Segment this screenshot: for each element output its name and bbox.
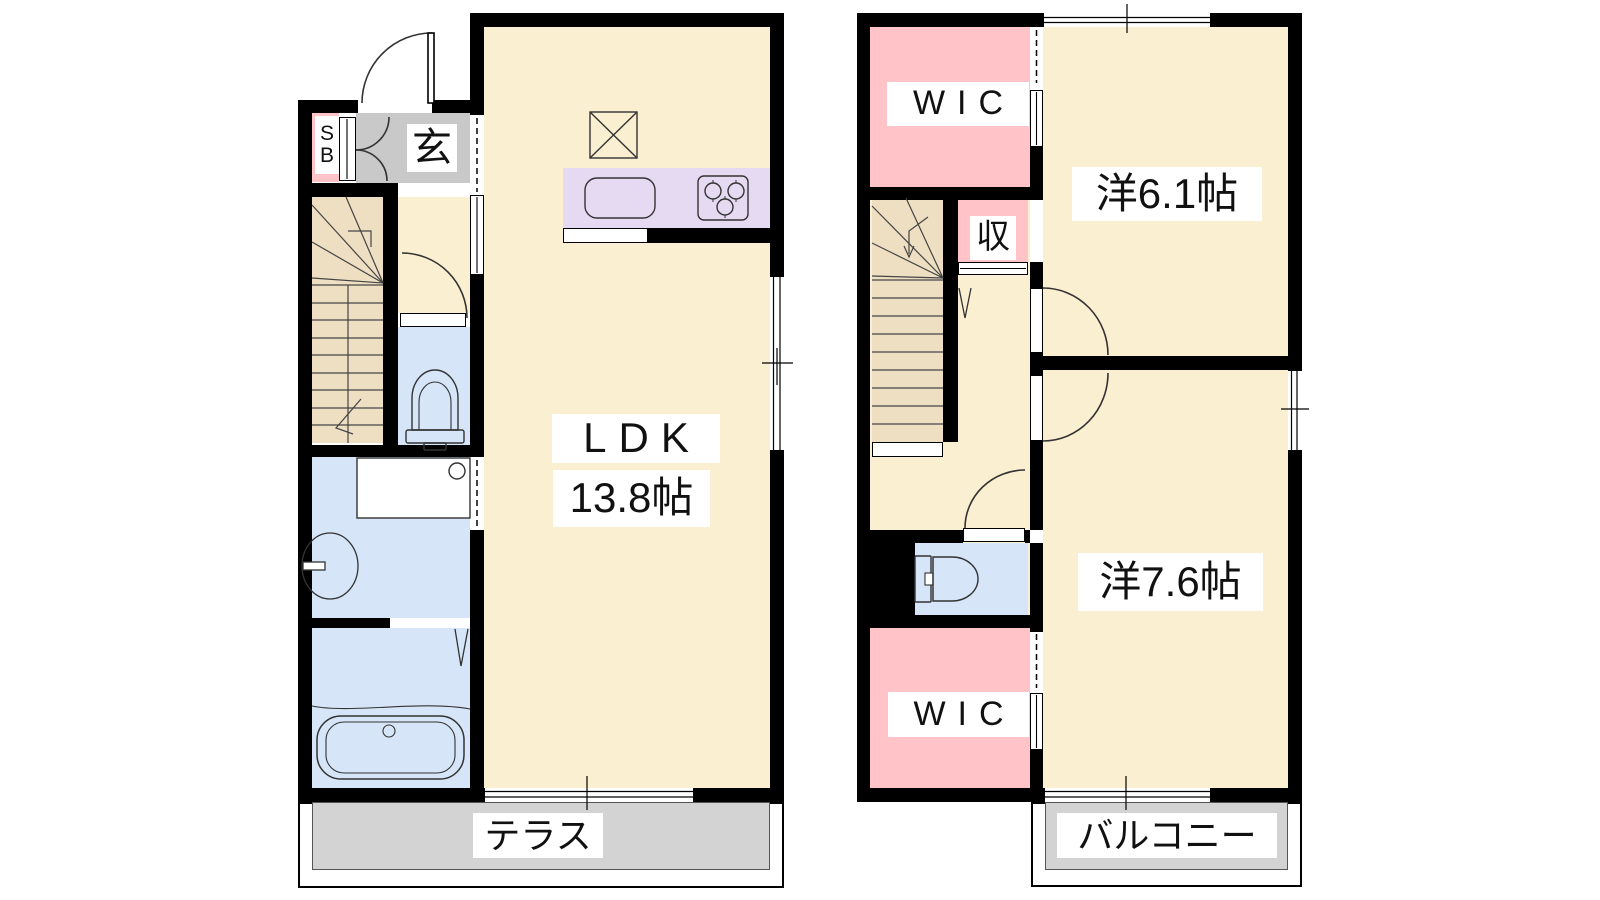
wall-segment: [1025, 530, 1030, 543]
wic-north-opening: [1030, 28, 1043, 85]
washroom-ldk-opening: [470, 457, 484, 530]
window-room76-south: [1045, 788, 1210, 802]
room61-label: 洋6.1帖: [1072, 167, 1262, 221]
room61-door: [1030, 288, 1043, 353]
wall-segment: [1030, 356, 1288, 370]
stair-landing-edge: [872, 442, 943, 457]
shoe-box-door: [339, 117, 356, 181]
wall-segment: [383, 197, 398, 445]
wall-segment: [432, 100, 470, 113]
room76-label: 洋7.6帖: [1078, 553, 1263, 611]
toilet-door-1f: [400, 313, 466, 327]
washroom-1f: [312, 457, 470, 618]
wall-segment: [1288, 450, 1302, 802]
wall-segment: [298, 100, 358, 113]
wall-segment: [857, 615, 1030, 628]
wic-north-door: [1030, 90, 1043, 147]
ldk-size-label: 13.8帖: [553, 470, 710, 527]
toilet-door-2f: [963, 528, 1025, 542]
bath-door-opening: [390, 618, 453, 628]
wall-segment: [470, 13, 784, 27]
storage-sliding-door: [958, 262, 1028, 275]
kitchen-counter-front: [563, 228, 648, 243]
wall-segment: [312, 445, 470, 457]
front-door-leaf: [428, 33, 434, 103]
wall-segment: [312, 183, 398, 197]
wall-segment: [857, 788, 1045, 802]
wall-segment: [943, 198, 958, 442]
wall-segment: [865, 530, 915, 628]
room-ldk: [484, 27, 770, 788]
wall-segment: [857, 13, 870, 802]
window-ldk-east: [770, 277, 784, 450]
window-ldk-south: [485, 788, 693, 802]
stairs-2f: [872, 198, 943, 442]
entrance-label: 玄: [407, 124, 457, 172]
wall-segment: [298, 788, 485, 802]
wall-segment: [648, 228, 770, 243]
wall-segment: [470, 13, 484, 115]
wall-segment: [1030, 750, 1043, 788]
wall-segment: [770, 450, 784, 802]
kitchen-counter: [563, 168, 770, 228]
wall-segment: [298, 100, 312, 802]
wall-segment: [1030, 147, 1043, 200]
shoe-box-label: SB: [315, 116, 339, 174]
wall-segment: [470, 275, 484, 457]
wall-segment: [470, 530, 484, 788]
room76-door: [1030, 375, 1043, 441]
wall-segment: [1030, 262, 1043, 288]
window-room61-north: [1044, 13, 1210, 27]
front-door-arc: [362, 33, 432, 103]
floor-plan-canvas: SB 玄 LDK 13.8帖 テラス WIC 洋6.1帖 収 洋7.6帖 WIC…: [0, 0, 1600, 900]
wall-segment: [1030, 441, 1043, 530]
front-door-opening: [358, 100, 432, 113]
wall-segment: [1288, 13, 1302, 371]
wic-north-label: WIC: [887, 82, 1029, 126]
wall-segment: [312, 618, 390, 628]
floorplan-linework: [0, 0, 1600, 900]
wall-segment: [693, 788, 784, 802]
wic-south-door: [1030, 693, 1043, 750]
terrace-label: テラス: [473, 813, 603, 858]
wall-segment: [1210, 788, 1302, 802]
wic-south-label: WIC: [888, 692, 1029, 737]
entrance-hall-opening: [398, 183, 470, 197]
storage-label: 収: [970, 216, 1016, 260]
wall-segment: [1030, 543, 1043, 632]
entrance-ldk-opening: [470, 115, 484, 195]
wall-segment: [770, 13, 784, 277]
toilet-room-1f: [398, 327, 470, 445]
bathroom-1f: [312, 628, 470, 788]
toilet-room-2f: [915, 543, 1028, 615]
window-room76-east: [1288, 371, 1302, 450]
hallway-1f: [390, 197, 470, 313]
wall-segment: [857, 13, 1044, 27]
ldk-label: LDK: [552, 414, 720, 463]
hall-ldk-door: [470, 195, 484, 275]
stairs-1f: [312, 197, 383, 443]
wall-segment: [915, 530, 963, 543]
wic-south-opening: [1030, 632, 1043, 690]
balcony-label: バルコニー: [1057, 813, 1277, 858]
